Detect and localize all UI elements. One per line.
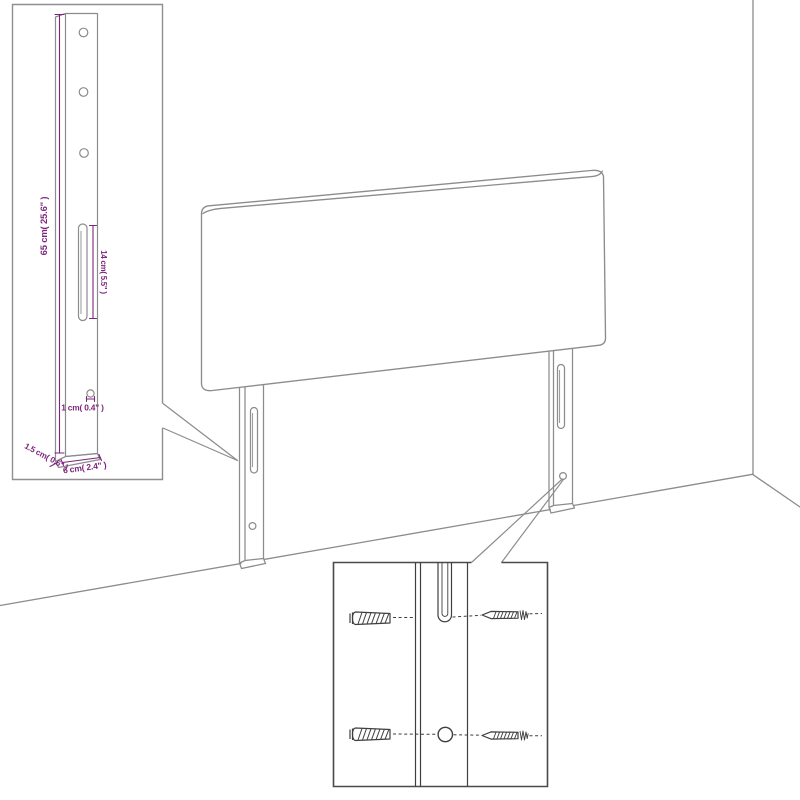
- headboard-left-leg: [240, 383, 266, 569]
- floor-wall-line-right: [753, 474, 800, 507]
- fastener-detail-inset: [334, 563, 548, 787]
- headboard-panel: [202, 170, 606, 390]
- fastener-inset-background: [334, 563, 548, 787]
- label-hole-diameter: 1 cm( 0.4" ): [61, 403, 104, 413]
- label-leg-height: 65 cm( 25.6" ): [39, 197, 50, 256]
- leg-dimension-inset: 65 cm( 25.6" ) 14 cm( 5.5" ) 1 cm( 0.4" …: [13, 5, 163, 480]
- panel-outline: [202, 170, 606, 390]
- leader-lines: [163, 404, 564, 563]
- product-diagram-page: 65 cm( 25.6" ) 14 cm( 5.5" ) 1 cm( 0.4" …: [0, 0, 800, 800]
- leg-inset-leader-upper: [163, 404, 238, 461]
- left-leg-silhouette: [240, 383, 266, 569]
- fastener-inset-leader-right: [502, 479, 564, 562]
- diagram-canvas: 65 cm( 25.6" ) 14 cm( 5.5" ) 1 cm( 0.4" …: [0, 0, 800, 800]
- label-slot-length: 14 cm( 5.5" ): [99, 250, 108, 294]
- leg-inset-leader-lower: [163, 428, 238, 461]
